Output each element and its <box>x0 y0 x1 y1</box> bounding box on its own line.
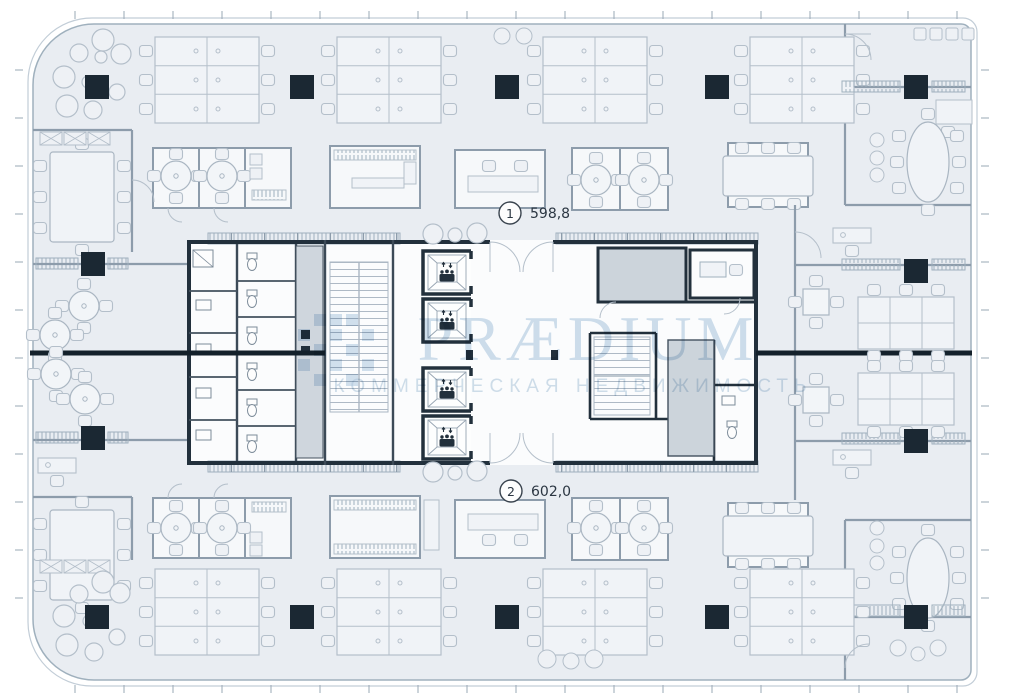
service-room <box>598 248 686 302</box>
toilet-icon <box>247 363 257 381</box>
unit-1-label: 1 598,8 <box>499 202 570 224</box>
desk-cluster <box>858 285 954 362</box>
toilet-icon <box>247 435 257 453</box>
desk-cluster <box>322 569 457 655</box>
toilet-icon <box>247 327 257 345</box>
unit-1-area: 598,8 <box>530 206 570 222</box>
toilet-icon <box>247 399 257 417</box>
unit-2-marker: 2 <box>507 484 515 499</box>
unit-2-label: 2 602,0 <box>500 480 571 502</box>
desk-cluster <box>528 569 663 655</box>
unit-2-area: 602,0 <box>531 484 571 500</box>
desk-cluster <box>140 569 275 655</box>
elevator-icon <box>423 416 471 459</box>
floor-plan-page: PRÆDIUM КОММЕРЧЕСКАЯ НЕДВИЖИМОСТЬ 1 598,… <box>0 0 1024 697</box>
floor-plan-drawing: PRÆDIUM КОММЕРЧЕСКАЯ НЕДВИЖИМОСТЬ 1 598,… <box>0 0 1024 697</box>
watermark-brand: PRÆDIUM <box>418 303 759 374</box>
desk-cluster <box>735 37 870 123</box>
watermark-tagline: КОММЕРЧЕСКАЯ НЕДВИЖИМОСТЬ <box>334 376 813 397</box>
toilet-icon <box>247 253 257 271</box>
unit-1-marker: 1 <box>506 206 514 221</box>
elevator-icon <box>423 251 471 294</box>
desk-cluster <box>735 569 870 655</box>
toilet-icon <box>247 290 257 308</box>
desk-cluster <box>528 37 663 123</box>
desk-cluster <box>858 361 954 438</box>
desk-cluster <box>140 37 275 123</box>
desk-cluster <box>322 37 457 123</box>
toilet-icon <box>727 421 737 439</box>
